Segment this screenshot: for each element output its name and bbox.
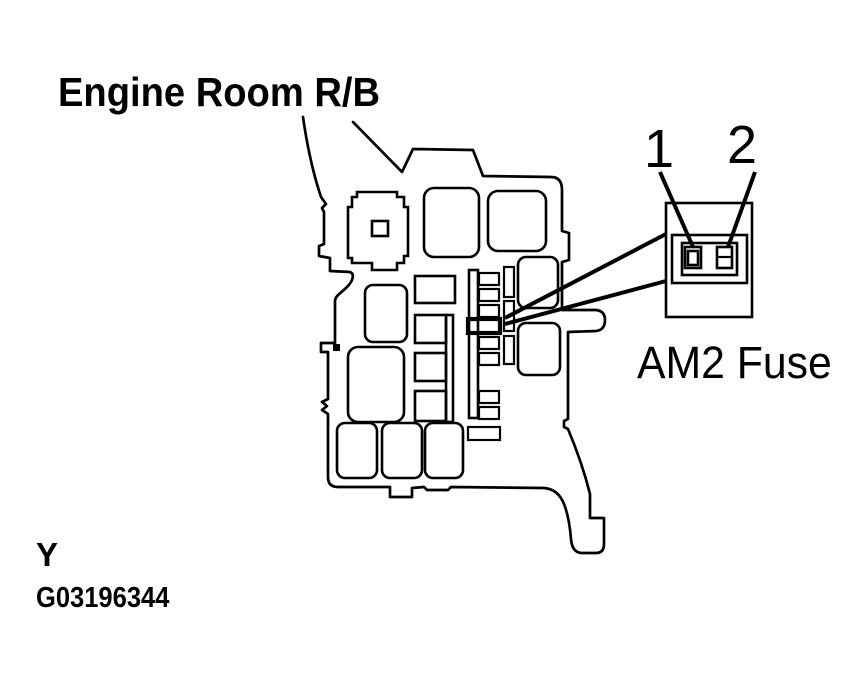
connector-d — [415, 391, 446, 421]
am2-fuse-highlight — [468, 319, 500, 333]
relay-window — [372, 221, 388, 236]
relay-box-9 — [425, 423, 463, 478]
mini-connector — [504, 267, 514, 297]
figure-id-label: G03196344 — [36, 584, 169, 613]
fuse-slot — [479, 353, 499, 365]
connector-c — [415, 353, 446, 381]
fuse-slot — [479, 407, 499, 419]
callout-leader-bottom — [505, 281, 666, 324]
fuse-slot — [479, 273, 499, 285]
relay-box-2 — [488, 191, 546, 251]
mini-connector — [504, 336, 514, 364]
fuse-slot — [479, 305, 499, 317]
relay-box-6 — [348, 347, 404, 422]
pin-1-label: 1 — [644, 122, 674, 176]
fuse-strip — [469, 270, 478, 418]
diagram-canvas: Engine Room R/B 1 2 AM2 Fuse Y G03196344 — [0, 0, 864, 689]
relay-box-8 — [382, 423, 422, 478]
fuse-slot — [479, 337, 499, 349]
connector-a — [415, 276, 455, 303]
relay-box-4 — [518, 323, 560, 375]
fuse-slot-wide — [468, 427, 500, 440]
fuse-terminal-1-inner — [688, 251, 698, 265]
pin-2-label: 2 — [727, 118, 757, 172]
connector-b — [415, 315, 446, 343]
relay-box-5 — [365, 285, 407, 342]
relay-box-1 — [424, 188, 479, 257]
fuse-name-label: AM2 Fuse — [637, 340, 832, 385]
relay-box-7 — [337, 423, 377, 478]
fuse-slot — [479, 289, 499, 301]
mount-tab — [333, 344, 340, 351]
section-label: Y — [36, 538, 58, 571]
relay-component — [348, 192, 408, 270]
fuse-slot — [479, 391, 499, 403]
callout-leader-top — [505, 234, 666, 318]
diagram-title: Engine Room R/B — [58, 72, 380, 113]
connector-rail — [446, 315, 453, 422]
